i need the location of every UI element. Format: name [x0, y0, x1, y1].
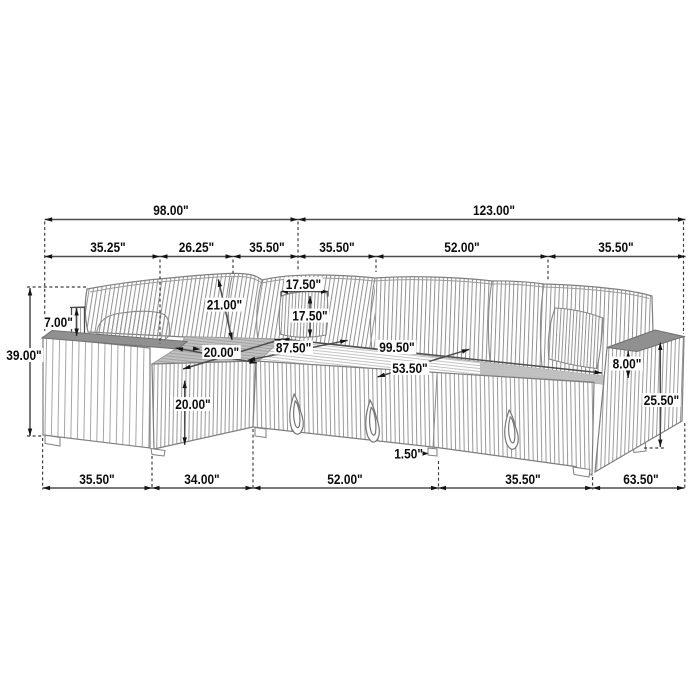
svg-text:39.00": 39.00" — [6, 348, 41, 363]
svg-text:34.00": 34.00" — [184, 472, 219, 487]
svg-text:35.50": 35.50" — [249, 240, 284, 255]
svg-text:35.50": 35.50" — [505, 472, 540, 487]
svg-text:17.50": 17.50" — [286, 277, 321, 292]
svg-text:17.50": 17.50" — [292, 308, 327, 323]
svg-text:7.00": 7.00" — [44, 315, 73, 330]
svg-text:20.00": 20.00" — [175, 397, 210, 412]
svg-text:1.50": 1.50" — [394, 446, 423, 461]
svg-text:52.00": 52.00" — [327, 472, 362, 487]
svg-text:53.50": 53.50" — [392, 361, 427, 376]
svg-text:123.00": 123.00" — [473, 203, 515, 218]
svg-text:87.50": 87.50" — [276, 340, 311, 355]
svg-text:99.50": 99.50" — [379, 340, 414, 355]
svg-text:35.50": 35.50" — [79, 472, 114, 487]
svg-text:35.50": 35.50" — [598, 240, 633, 255]
svg-text:21.00": 21.00" — [207, 297, 242, 312]
svg-text:98.00": 98.00" — [153, 203, 188, 218]
svg-text:63.50": 63.50" — [623, 472, 658, 487]
svg-text:52.00": 52.00" — [444, 240, 479, 255]
svg-text:26.25": 26.25" — [179, 240, 214, 255]
svg-text:35.50": 35.50" — [319, 240, 354, 255]
svg-text:20.00": 20.00" — [204, 345, 239, 360]
svg-text:8.00": 8.00" — [613, 356, 642, 371]
svg-text:25.50": 25.50" — [644, 393, 679, 408]
svg-text:35.25": 35.25" — [90, 240, 125, 255]
